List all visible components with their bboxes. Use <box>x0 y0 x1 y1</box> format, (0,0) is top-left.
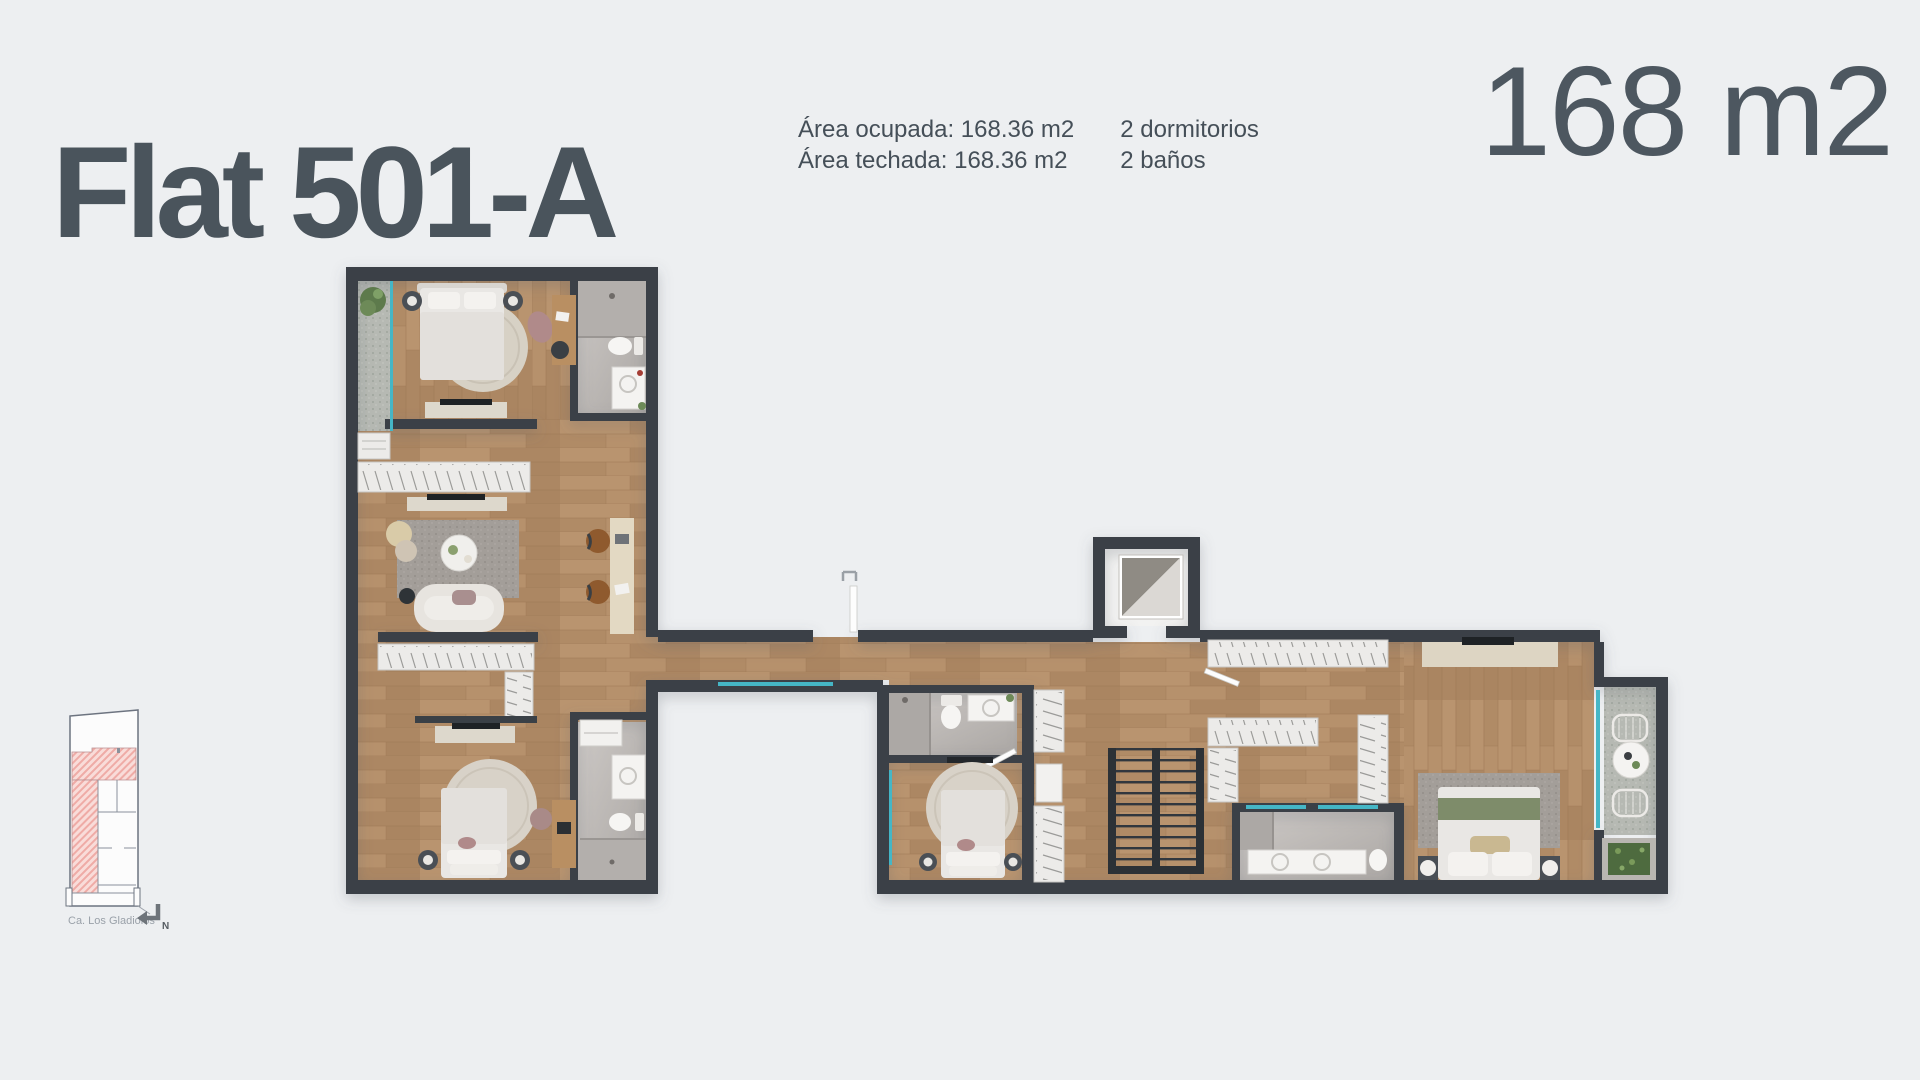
compass-leader <box>138 906 150 914</box>
table-plant <box>1632 761 1640 769</box>
plant <box>638 402 646 410</box>
stairs <box>1108 748 1204 874</box>
planter <box>1608 843 1650 875</box>
pillow <box>450 864 498 875</box>
accent-pillow <box>1470 836 1510 854</box>
pillow <box>464 292 496 309</box>
shower-area <box>578 281 646 337</box>
tv <box>452 723 500 729</box>
desk-chair <box>530 808 552 830</box>
toilet <box>609 813 631 831</box>
pillow <box>1492 852 1532 876</box>
unit-highlight-band <box>72 748 136 780</box>
closet <box>358 433 390 459</box>
bathroom-4-glass <box>1246 805 1306 809</box>
floor-plan-graphic: Ca. Los Gladiolos N <box>0 0 1920 1080</box>
deco-pillow <box>957 839 975 851</box>
unit-highlight-corridor <box>72 780 98 893</box>
table-decor <box>1624 752 1632 760</box>
toilet <box>1369 849 1387 871</box>
corridor-floor <box>646 637 889 680</box>
shower <box>889 693 929 755</box>
side-table <box>395 540 417 562</box>
laptop <box>557 822 571 834</box>
plant <box>1006 694 1014 702</box>
sideboard <box>1422 642 1558 667</box>
pillow <box>1448 852 1488 876</box>
green-blanket <box>1438 798 1540 820</box>
shower-head <box>902 697 908 703</box>
tv <box>427 494 485 500</box>
pillow <box>428 292 460 309</box>
shower <box>1240 812 1272 850</box>
shower-glass <box>1272 812 1274 850</box>
toilet-tank <box>941 695 962 706</box>
sofa-blanket <box>452 590 476 605</box>
laptop <box>615 534 629 544</box>
shower-glass <box>580 838 646 840</box>
elevator <box>1119 555 1183 619</box>
floor-plan-page: Flat 501-A Área ocupada: 168.36 m2 Área … <box>0 0 1920 1080</box>
door-marker <box>843 572 856 581</box>
pillow <box>949 866 997 876</box>
drain <box>610 860 615 865</box>
corridor-window-glass <box>718 682 833 686</box>
balcony-glass <box>390 281 393 431</box>
wall-shelf <box>415 716 537 723</box>
niche-shelf <box>1036 764 1062 802</box>
pillow <box>946 852 1000 866</box>
stair-rail <box>1196 748 1204 872</box>
terrace-table <box>1613 742 1649 778</box>
deco-pillow <box>458 837 476 849</box>
bedroom-3-window-glass <box>889 770 892 865</box>
entrance-door <box>850 586 857 632</box>
pillow <box>447 850 501 864</box>
bathroom-4-glass-2 <box>1318 805 1378 809</box>
terrace-glass <box>1596 690 1600 828</box>
vanity <box>612 755 645 799</box>
entry <box>843 572 857 632</box>
shower-glass <box>929 693 931 755</box>
papers <box>555 311 569 322</box>
pouf <box>399 588 415 604</box>
double-vanity <box>1248 850 1366 874</box>
stair-rail <box>1152 748 1160 872</box>
location-minimap: Ca. Los Gladiolos N <box>66 710 169 932</box>
toilet <box>608 337 632 355</box>
plot-tab-left <box>66 888 72 906</box>
north-label: N <box>162 921 169 932</box>
decor <box>637 370 643 376</box>
table-plant <box>448 545 458 555</box>
stair-rail <box>1108 748 1116 872</box>
tv <box>440 399 492 405</box>
coffee-table <box>441 535 477 571</box>
tv <box>1462 637 1514 645</box>
desk-chair <box>551 341 569 359</box>
shower-head <box>609 293 615 299</box>
north-arrow <box>146 904 158 918</box>
plot-tab-right <box>134 888 140 906</box>
stair-landing <box>1108 866 1204 874</box>
toilet <box>941 705 961 729</box>
